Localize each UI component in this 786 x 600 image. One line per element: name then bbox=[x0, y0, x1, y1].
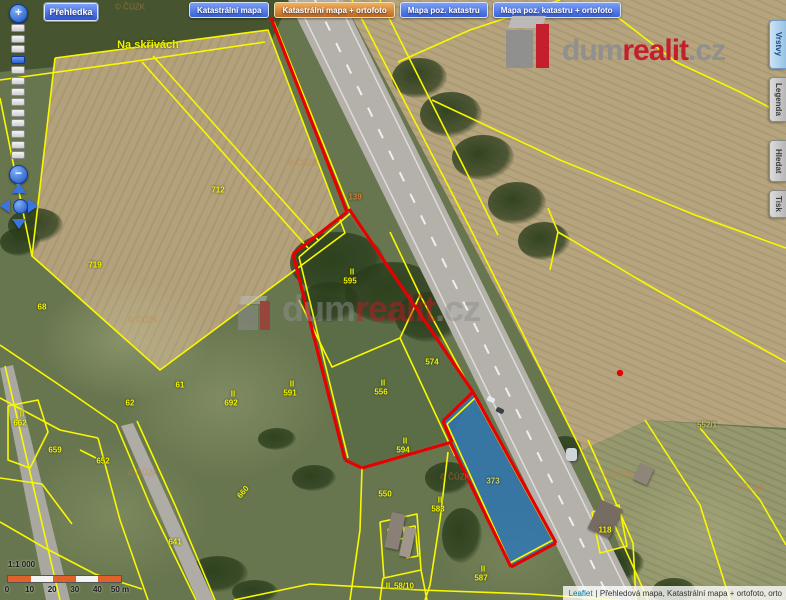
leaflet-link[interactable]: Leaflet bbox=[569, 589, 593, 598]
side-tab-tisk[interactable]: Tisk bbox=[769, 190, 786, 218]
cadastral-boundary bbox=[548, 208, 558, 270]
zoom-slider-tick[interactable] bbox=[11, 141, 25, 149]
attribution-text: | Přehledová mapa, Katastrální mapa + or… bbox=[596, 589, 782, 598]
pan-center-icon[interactable] bbox=[13, 199, 28, 214]
side-tab-legenda[interactable]: Legenda bbox=[769, 77, 786, 122]
cadastral-boundary bbox=[0, 522, 142, 589]
cadastral-boundary bbox=[137, 421, 215, 600]
zoom-slider-tick[interactable] bbox=[11, 35, 25, 43]
zoom-slider-tick[interactable] bbox=[11, 77, 25, 85]
pan-up-arrow-icon[interactable] bbox=[12, 183, 26, 193]
side-tab-hledat[interactable]: Hledat bbox=[769, 140, 786, 182]
side-tab-vrstvy[interactable]: Vrstvy bbox=[769, 20, 786, 69]
zoom-slider-tick[interactable] bbox=[11, 88, 25, 96]
overview-button[interactable]: Přehledka bbox=[44, 3, 98, 21]
pan-control[interactable] bbox=[0, 183, 38, 229]
side-road bbox=[121, 423, 214, 600]
zoom-slider-tick[interactable] bbox=[11, 130, 25, 138]
highlighted-parcel-outline bbox=[293, 212, 347, 254]
pan-right-arrow-icon[interactable] bbox=[28, 199, 38, 213]
highlighted-parcel-outline bbox=[293, 254, 345, 460]
zoom-slider-tick[interactable] bbox=[11, 24, 25, 32]
pan-left-arrow-icon[interactable] bbox=[0, 199, 10, 213]
zoom-slider-tick[interactable] bbox=[11, 45, 25, 53]
cadastral-boundary bbox=[425, 452, 448, 600]
cadastral-boundary bbox=[299, 257, 348, 458]
cadastral-overlay bbox=[0, 0, 786, 600]
zoom-slider-handle[interactable] bbox=[11, 56, 25, 64]
pan-down-arrow-icon[interactable] bbox=[12, 219, 26, 229]
highlighted-parcel-outline bbox=[345, 460, 362, 468]
attribution-bar: Leaflet | Přehledová mapa, Katastrální m… bbox=[563, 586, 786, 600]
cadastral-boundary bbox=[645, 420, 730, 600]
map-button-2[interactable]: Katastrální mapa + ortofoto bbox=[274, 2, 394, 18]
cadastral-boundary bbox=[700, 428, 786, 545]
cadastral-boundary bbox=[598, 2, 786, 116]
cadastral-boundary bbox=[350, 468, 362, 600]
zoom-slider[interactable] bbox=[11, 24, 25, 162]
zoom-slider-tick[interactable] bbox=[11, 98, 25, 106]
cadastral-boundary bbox=[116, 424, 196, 600]
zoom-slider-tick[interactable] bbox=[11, 151, 25, 159]
map-type-buttons: Katastrální mapaKatastrální mapa + ortof… bbox=[189, 2, 621, 18]
red-point-marker bbox=[617, 370, 623, 376]
cadastral-boundary bbox=[421, 570, 427, 600]
cadastral-boundary bbox=[142, 62, 308, 248]
cadastral-boundary bbox=[380, 514, 421, 578]
zoom-slider-tick[interactable] bbox=[11, 66, 25, 74]
place-name-label: Na skřivách bbox=[117, 39, 179, 51]
cadastral-boundary bbox=[380, 578, 383, 600]
highlighted-parcel-outline bbox=[362, 442, 452, 468]
zoom-in-button[interactable]: + bbox=[9, 4, 28, 23]
zoom-out-button[interactable]: − bbox=[9, 165, 28, 184]
cadastral-boundary bbox=[153, 56, 319, 241]
map-button-4[interactable]: Mapa poz. katastru + ortofoto bbox=[493, 2, 621, 18]
cadastral-boundary bbox=[432, 100, 786, 248]
cadastral-boundary bbox=[404, 526, 418, 558]
cadastral-boundary bbox=[558, 232, 786, 362]
cadastral-boundary bbox=[388, 526, 405, 541]
zoom-slider-tick[interactable] bbox=[11, 119, 25, 127]
cadastral-boundary bbox=[80, 450, 96, 458]
zoom-slider-tick[interactable] bbox=[11, 109, 25, 117]
map-button-3[interactable]: Mapa poz. katastru bbox=[400, 2, 488, 18]
map-canvas[interactable]: Na skřivách 712719686162II692II662659652… bbox=[0, 0, 786, 600]
map-button-1[interactable]: Katastrální mapa bbox=[189, 2, 269, 18]
